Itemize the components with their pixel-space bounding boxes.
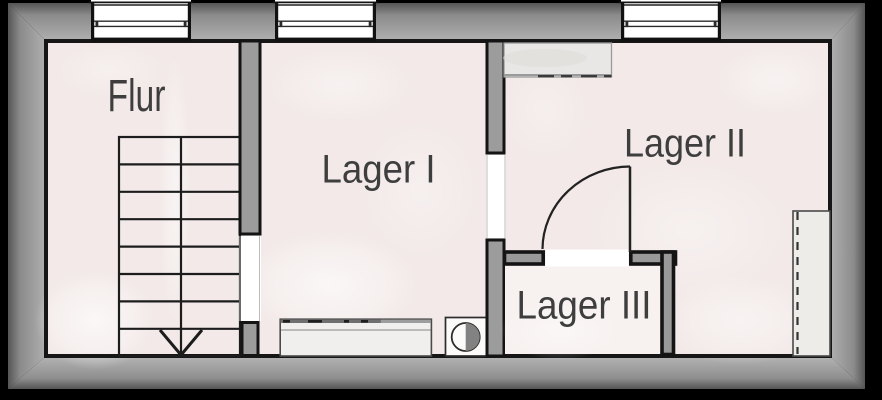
svg-text:Lager III: Lager III: [517, 284, 652, 328]
svg-text:Lager II: Lager II: [624, 122, 746, 166]
svg-text:Flur: Flur: [108, 70, 166, 121]
svg-text:Lager I: Lager I: [322, 148, 436, 192]
